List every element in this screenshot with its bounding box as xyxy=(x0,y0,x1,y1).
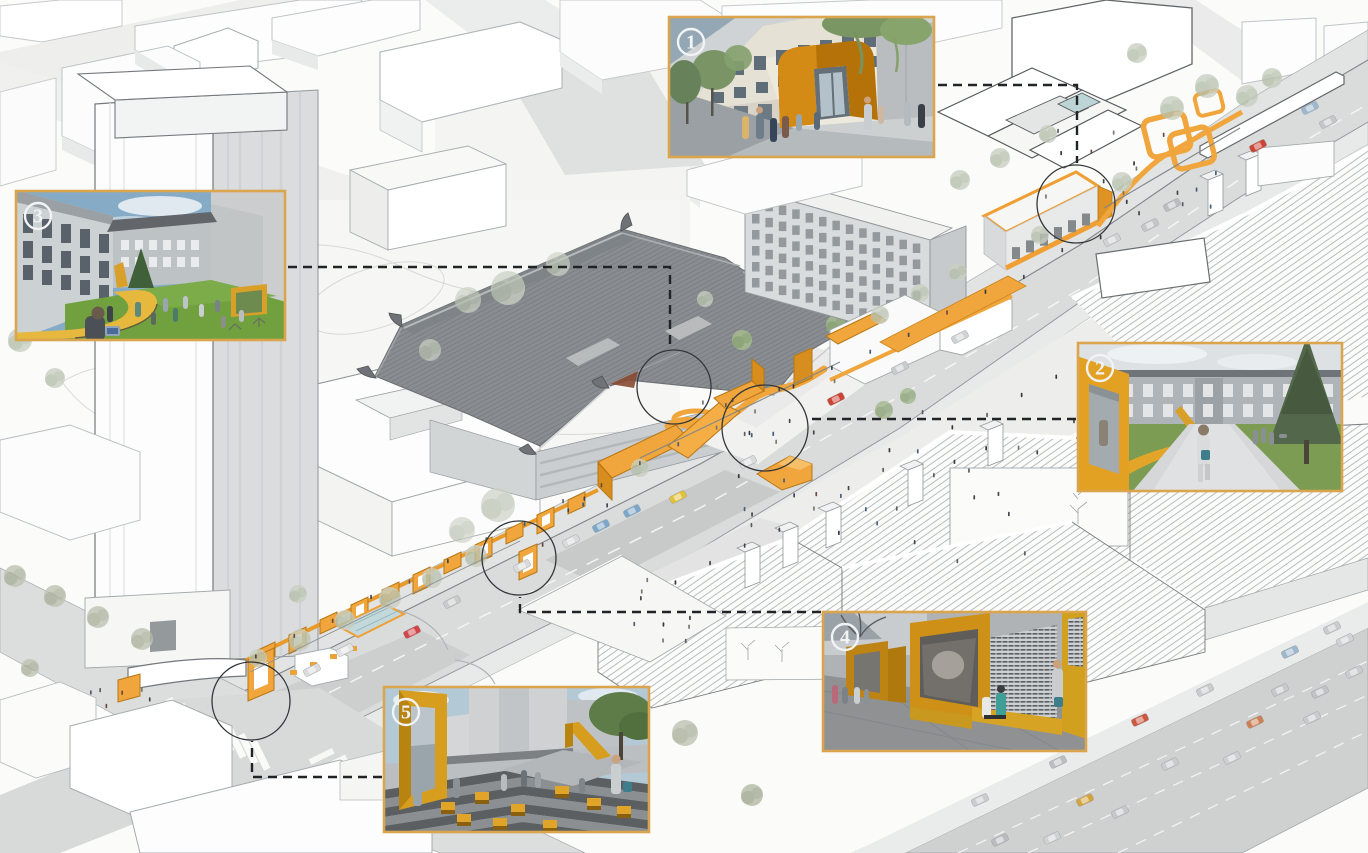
svg-text:2: 2 xyxy=(1095,358,1105,380)
svg-text:5: 5 xyxy=(401,702,411,724)
svg-text:4: 4 xyxy=(840,627,850,649)
svg-text:1: 1 xyxy=(686,32,696,54)
svg-text:3: 3 xyxy=(33,206,43,228)
